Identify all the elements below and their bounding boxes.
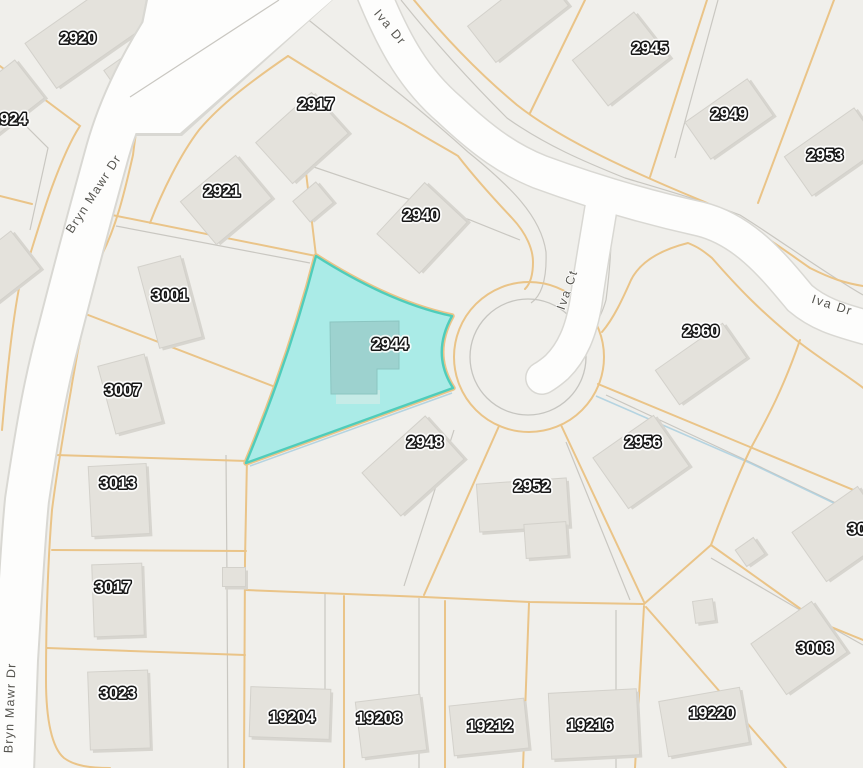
svg-text:2917: 2917 xyxy=(298,96,335,114)
svg-text:3001: 3001 xyxy=(152,287,189,305)
svg-text:2952: 2952 xyxy=(514,478,551,496)
svg-text:2945: 2945 xyxy=(632,40,669,58)
svg-text:2956: 2956 xyxy=(625,434,662,452)
svg-text:2953: 2953 xyxy=(807,147,844,165)
svg-text:19220: 19220 xyxy=(689,705,735,723)
svg-text:2940: 2940 xyxy=(403,207,440,225)
svg-text:3008: 3008 xyxy=(797,640,834,658)
svg-text:19216: 19216 xyxy=(567,717,613,735)
svg-text:3017: 3017 xyxy=(95,579,132,597)
svg-text:3004: 3004 xyxy=(848,521,863,539)
svg-text:2921: 2921 xyxy=(204,183,241,201)
svg-text:2949: 2949 xyxy=(711,106,748,124)
svg-text:2944: 2944 xyxy=(372,336,410,354)
svg-text:2948: 2948 xyxy=(407,434,444,452)
svg-text:2924: 2924 xyxy=(0,111,28,129)
svg-text:2960: 2960 xyxy=(683,323,720,341)
svg-text:2920: 2920 xyxy=(60,30,97,48)
svg-text:19204: 19204 xyxy=(269,709,316,727)
svg-text:3023: 3023 xyxy=(100,685,137,703)
svg-text:3007: 3007 xyxy=(105,382,142,400)
svg-text:3013: 3013 xyxy=(100,475,137,493)
svg-text:19208: 19208 xyxy=(356,710,402,728)
svg-text:19212: 19212 xyxy=(467,718,513,736)
